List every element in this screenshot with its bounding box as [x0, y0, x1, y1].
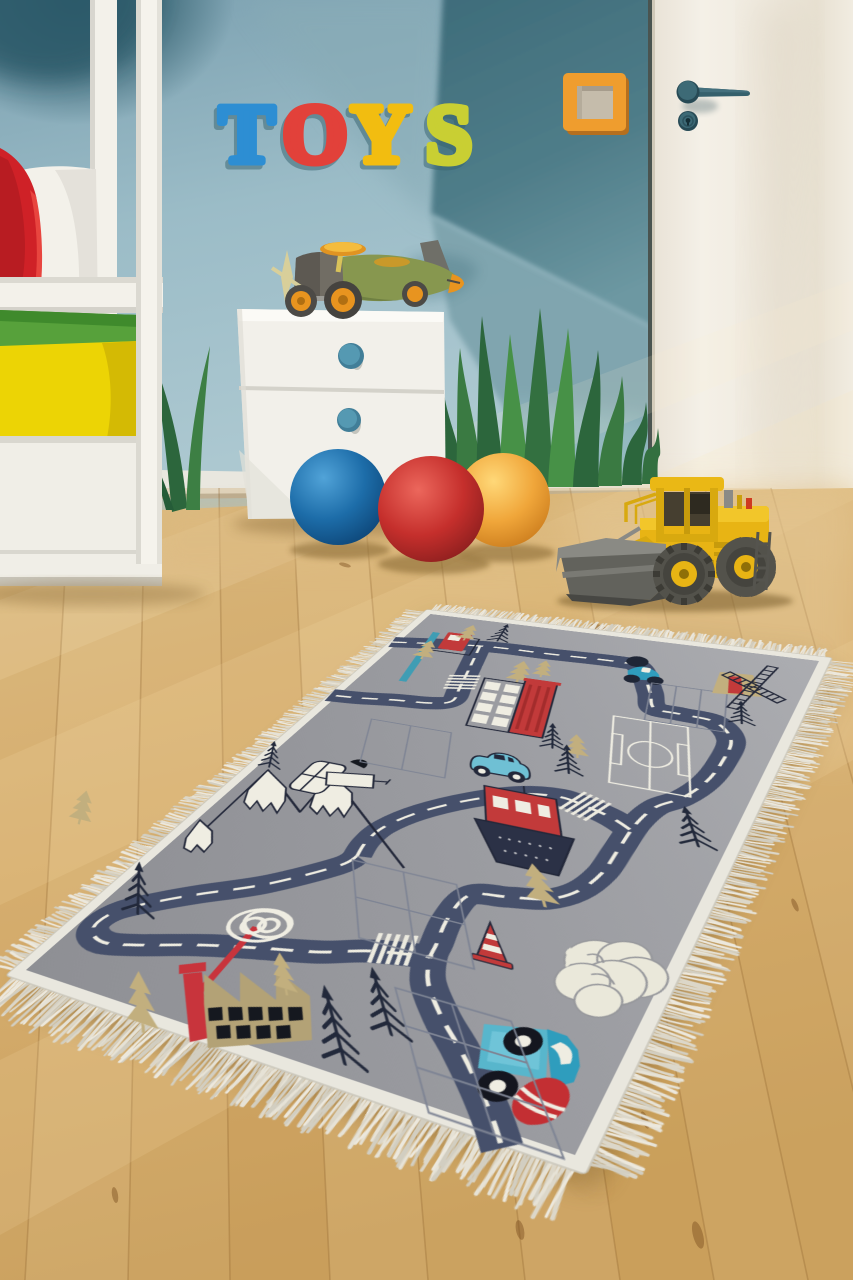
svg-text:Y: Y [351, 88, 412, 181]
svg-text:T: T [219, 88, 275, 181]
svg-text:O: O [282, 88, 347, 181]
svg-text:S: S [426, 88, 473, 181]
